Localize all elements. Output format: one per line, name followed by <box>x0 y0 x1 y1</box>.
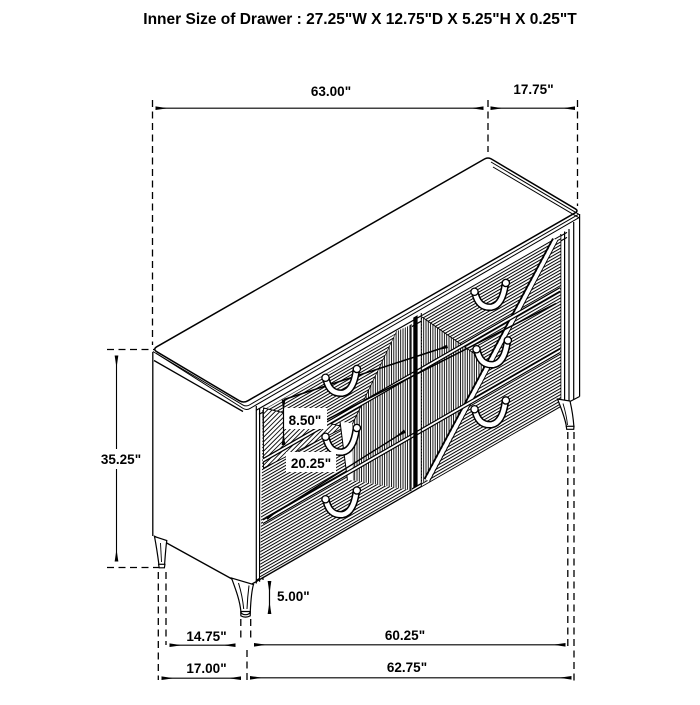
svg-text:5.00": 5.00" <box>277 589 310 604</box>
svg-text:17.75": 17.75" <box>513 82 553 97</box>
svg-text:8.50": 8.50" <box>289 413 322 428</box>
svg-text:63.00": 63.00" <box>311 84 351 99</box>
svg-text:35.25": 35.25" <box>101 452 141 467</box>
svg-text:62.75": 62.75" <box>387 660 427 675</box>
svg-text:14.75": 14.75" <box>186 629 226 644</box>
svg-text:Inner Size of Drawer : 27.25"W: Inner Size of Drawer : 27.25"W X 12.75"D… <box>143 11 577 28</box>
svg-text:17.00": 17.00" <box>186 661 226 676</box>
svg-text:20.25": 20.25" <box>291 456 331 471</box>
svg-text:60.25": 60.25" <box>385 628 425 643</box>
